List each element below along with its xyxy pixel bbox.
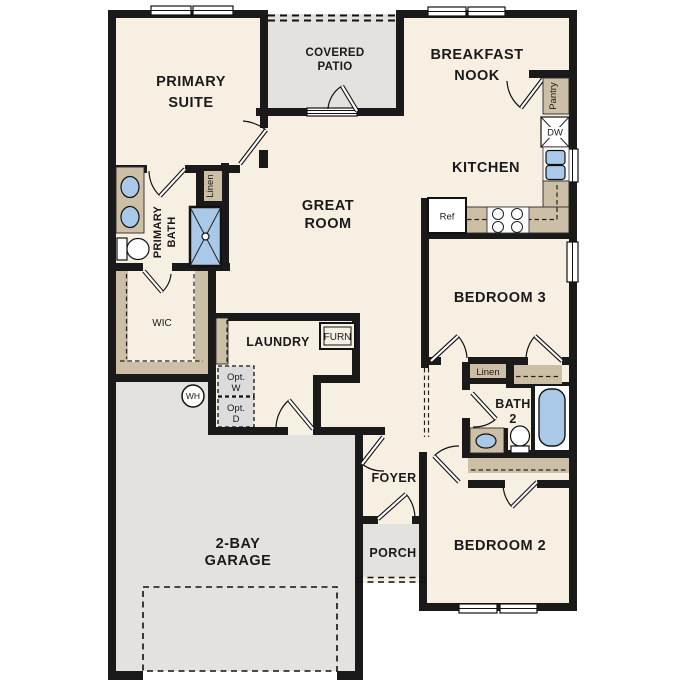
- room-label-bedroom3: BEDROOM 3: [454, 290, 546, 306]
- callout-water-heater: WH: [186, 391, 200, 401]
- wall-segment: [108, 10, 116, 680]
- wall-segment: [419, 516, 427, 583]
- floorplan-drawing: PRIMARY SUITE COVERED PATIO BREAKFAST NO…: [0, 0, 687, 687]
- callout-opt-washer: Opt.: [227, 372, 245, 383]
- room-label-great-room: ROOM: [304, 216, 351, 232]
- toilet-icon: [511, 426, 530, 453]
- room-label-primary-suite: SUITE: [168, 95, 213, 111]
- callout-dishwasher: DW: [547, 128, 563, 139]
- wall-segment: [569, 10, 577, 611]
- room-label-laundry: LAUNDRY: [246, 335, 310, 349]
- toilet-icon: [117, 238, 149, 260]
- window: [151, 6, 191, 15]
- laundry-cabinet: [216, 318, 228, 364]
- wall-segment: [208, 263, 216, 435]
- patio-slider-door: [307, 108, 357, 116]
- callout-furnace: FURN: [324, 332, 352, 343]
- wall-segment: [337, 671, 363, 680]
- wall-segment: [256, 108, 307, 116]
- window: [459, 604, 497, 613]
- room-label-great-room: GREAT: [302, 198, 354, 214]
- wall-segment: [537, 480, 572, 488]
- bedroom2-closet-shelf: [468, 458, 569, 473]
- window: [468, 7, 505, 16]
- callout-refrigerator: Ref: [440, 212, 455, 223]
- callout-opt-washer: W: [232, 383, 241, 394]
- callout-linen: Linen: [205, 174, 216, 197]
- wall-segment: [259, 150, 268, 168]
- wall-segment: [462, 418, 470, 453]
- exterior: [363, 583, 427, 611]
- wall-segment: [468, 357, 528, 365]
- callout-opt-dryer: Opt.: [227, 403, 245, 414]
- room-label-porch: PORCH: [369, 546, 416, 560]
- window: [193, 6, 233, 15]
- room-label-covered-patio: COVERED: [306, 47, 365, 59]
- wall-segment: [396, 10, 404, 116]
- wall-segment: [313, 427, 385, 435]
- wall-segment: [419, 603, 577, 611]
- wall-segment: [562, 357, 577, 365]
- room-label-garage: GARAGE: [205, 553, 272, 569]
- sink-icon: [121, 207, 139, 228]
- room-label-primary-suite: PRIMARY: [156, 74, 226, 90]
- exterior: [423, 611, 577, 680]
- room-label-garage: 2-BAY: [216, 536, 261, 552]
- wall-segment: [529, 70, 569, 78]
- floorplan: PRIMARY SUITE COVERED PATIO BREAKFAST NO…: [0, 0, 687, 687]
- sink-icon: [476, 434, 496, 448]
- wall-segment: [108, 671, 143, 680]
- garage-floor: [116, 382, 212, 671]
- wall-segment: [355, 516, 378, 524]
- room-label-bath2: BATH: [495, 397, 530, 411]
- wall-segment: [208, 313, 360, 321]
- wall-segment: [355, 427, 363, 680]
- kitchen-sink-icon: [543, 147, 569, 181]
- room-label-kitchen: KITCHEN: [452, 160, 520, 176]
- room-label-wic: WIC: [152, 318, 171, 329]
- sink-icon: [121, 177, 139, 198]
- bathtub-icon: [535, 386, 569, 450]
- wall-segment: [531, 386, 535, 452]
- callout-linen: Linen: [476, 367, 499, 378]
- room-label-breakfast-nook: BREAKFAST: [430, 47, 523, 63]
- wall-segment: [208, 427, 288, 435]
- wall-segment: [504, 428, 508, 453]
- window: [567, 242, 578, 282]
- room-label-primary-bath: PRIMARY: [152, 205, 164, 258]
- shower-icon: [190, 207, 221, 266]
- bedroom3-closet-shelf: [514, 365, 562, 384]
- room-label-breakfast-nook: NOOK: [454, 68, 500, 84]
- room-label-primary-bath: BATH: [166, 217, 178, 248]
- room-label-bedroom2: BEDROOM 2: [454, 538, 546, 554]
- room-label-bath2: 2: [509, 412, 516, 426]
- wall-segment: [108, 263, 143, 271]
- wall-segment: [462, 362, 470, 390]
- window: [500, 604, 537, 613]
- wall-segment: [462, 377, 510, 384]
- callout-pantry: Pantry: [548, 82, 559, 110]
- patio-top-gap: [268, 8, 396, 14]
- room-label-foyer: FOYER: [371, 471, 416, 485]
- wall-segment: [468, 480, 505, 488]
- wall-segment: [421, 357, 431, 365]
- callout-opt-dryer: D: [233, 414, 240, 425]
- wall-segment: [108, 374, 212, 382]
- wall-segment: [313, 375, 321, 435]
- window: [428, 7, 466, 16]
- stove-icon: [487, 207, 529, 233]
- room-label-covered-patio: PATIO: [318, 61, 353, 73]
